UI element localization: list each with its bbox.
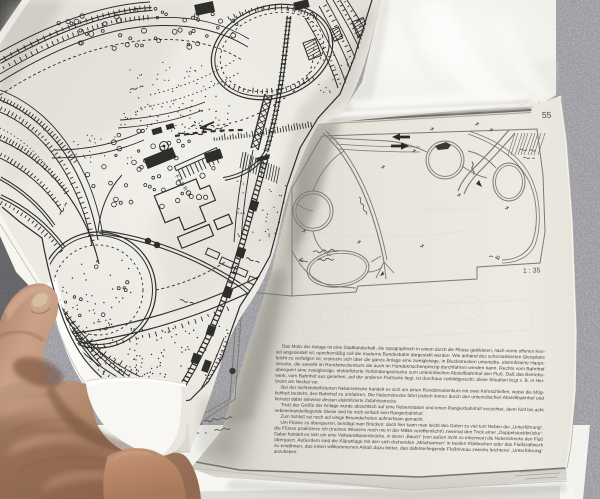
svg-text:anzuheben.: anzuheben.	[274, 449, 298, 454]
svg-text:55: 55	[542, 110, 552, 120]
svg-text:bronn am Neckar vor.: bronn am Neckar vor.	[275, 379, 319, 385]
svg-text:1 : 35: 1 : 35	[523, 267, 541, 275]
